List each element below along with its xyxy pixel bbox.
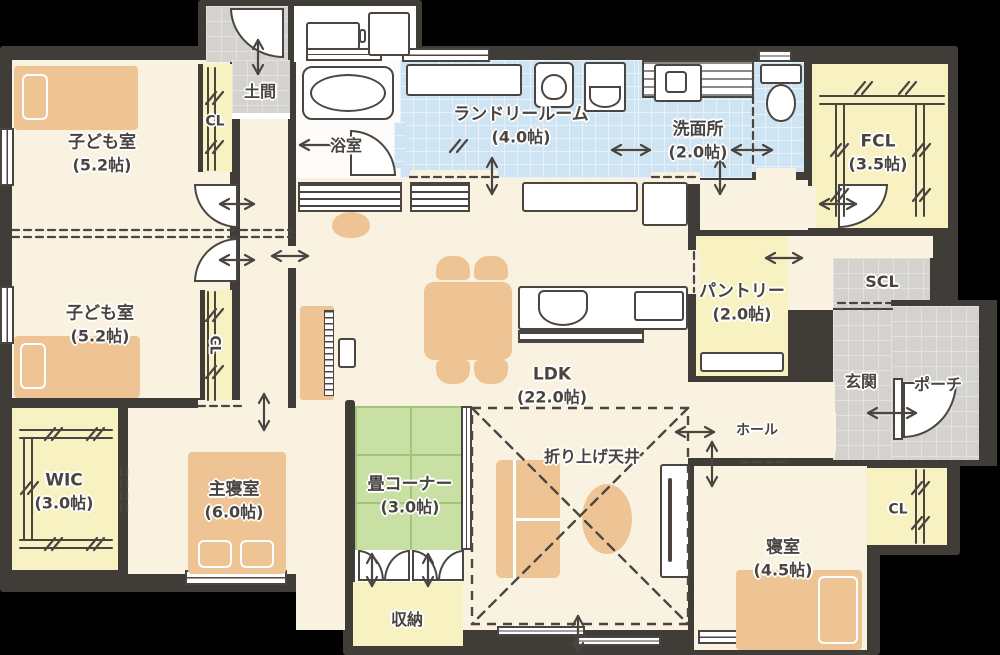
window-kids2-left xyxy=(0,286,14,344)
ldk-size: (22.0帖) xyxy=(517,387,587,409)
label-tatami: 畳コーナー (3.0帖) xyxy=(368,474,453,519)
fridge xyxy=(642,182,688,226)
kids1-name: 子ども室 xyxy=(68,133,136,153)
label-pantry: パントリー (2.0帖) xyxy=(699,281,785,326)
dining-chair-4 xyxy=(474,360,508,384)
storage-name: 収納 xyxy=(391,610,423,629)
cl1-name: CL xyxy=(205,114,224,130)
kitchen-stove xyxy=(634,291,684,321)
dining-chair-2 xyxy=(474,256,508,280)
hall-upper xyxy=(700,180,808,230)
laundry-counter xyxy=(406,64,522,96)
counter-desk-1 xyxy=(298,182,402,212)
hall-strip-scl xyxy=(788,236,933,258)
ceiling-name: 折り上げ天井 xyxy=(544,447,640,466)
window-toilet-top xyxy=(758,50,792,62)
toilet-bowl xyxy=(766,84,796,122)
pantry-size: (2.0帖) xyxy=(699,304,785,326)
piano-keys xyxy=(324,310,334,396)
label-porch: ポーチ xyxy=(914,374,962,396)
opening-hall-genkan xyxy=(826,412,836,452)
dining-chair-3 xyxy=(436,360,470,384)
label-cl2: CL xyxy=(205,335,224,354)
desk-stool xyxy=(332,212,370,238)
opening-corridor-ldk xyxy=(284,246,300,268)
wic-name: WIC xyxy=(45,471,83,491)
tv xyxy=(668,478,672,562)
tv-board xyxy=(660,464,690,578)
coffee-table xyxy=(582,484,632,554)
label-doma: 土間 xyxy=(244,81,276,103)
senmen-size: (2.0帖) xyxy=(669,142,728,164)
corridor xyxy=(240,119,288,410)
outdoor-unit xyxy=(368,12,410,56)
window-laundry-top xyxy=(402,48,490,62)
cl2-name: CL xyxy=(206,335,222,354)
opening-hall-ldk xyxy=(684,414,700,454)
pillow-kids2 xyxy=(20,343,46,389)
water-heater-tab xyxy=(359,29,366,43)
blanket-bedroom xyxy=(818,576,858,644)
kids2-name: 子ども室 xyxy=(66,304,134,324)
sofa xyxy=(496,460,560,578)
kitchen-sink xyxy=(538,290,588,326)
label-hall: ホール xyxy=(736,422,778,441)
dining-table xyxy=(424,282,512,360)
pantry-shelf xyxy=(700,352,784,372)
bedroom-name: 寝室 xyxy=(766,538,800,558)
label-fcl: FCL (3.5帖) xyxy=(849,131,908,176)
label-bedroom: 寝室 (4.5帖) xyxy=(754,537,813,582)
pillow-kids1 xyxy=(22,74,48,120)
label-ldk: LDK (22.0帖) xyxy=(517,364,587,409)
label-laundry: ランドリールーム (4.0帖) xyxy=(453,104,589,149)
opening-toilet-hall xyxy=(756,168,796,182)
window-kids1-left xyxy=(0,128,14,186)
label-genkan: 玄関 xyxy=(845,371,877,393)
label-scl: SCL xyxy=(865,271,898,293)
master-name: 主寝室 xyxy=(208,480,259,500)
genkan-name: 玄関 xyxy=(845,372,877,391)
floor-plan: 子ども室 (5.2帖) CL 子ども室 (5.2帖) CL 土間 浴室 ランドリ… xyxy=(0,0,1000,655)
toilet-tank xyxy=(760,64,802,84)
hall-strip-side xyxy=(788,258,833,310)
bathtub-inner xyxy=(310,74,386,112)
ldk-name: LDK xyxy=(533,365,571,385)
label-kids2: 子ども室 (5.2帖) xyxy=(66,303,134,348)
piano-bench xyxy=(338,338,356,368)
window-ldk-slider-1 xyxy=(497,626,585,636)
label-wic: WIC (3.0帖) xyxy=(35,470,94,515)
label-master: 主寝室 (6.0帖) xyxy=(205,479,264,524)
opening-pantry xyxy=(686,250,700,294)
label-storage: 収納 xyxy=(391,609,423,631)
kids1-size: (5.2帖) xyxy=(68,155,136,177)
water-heater-unit xyxy=(306,22,360,50)
kitchen-front-panel xyxy=(518,330,644,343)
hall-name: ホール xyxy=(736,423,778,439)
pillow-master-1 xyxy=(198,540,232,568)
opening-fcl-door xyxy=(804,186,816,228)
master-size: (6.0帖) xyxy=(205,502,264,524)
opening-master-door xyxy=(198,400,244,410)
opening-bath-laundry xyxy=(394,122,406,168)
porch-name: ポーチ xyxy=(914,375,962,394)
tatami-size: (3.0帖) xyxy=(368,497,453,519)
dining-chair-1 xyxy=(436,256,470,280)
opening-laundry-ldk xyxy=(410,170,498,182)
hall-main xyxy=(688,382,835,458)
cl3-name: CL xyxy=(888,502,907,518)
kitchen-back-counter xyxy=(522,182,638,212)
label-senmen: 洗面所 (2.0帖) xyxy=(669,119,728,164)
scl-name: SCL xyxy=(865,272,898,291)
counter-desk-2 xyxy=(410,182,470,212)
laundry-basket xyxy=(589,86,621,108)
laundry-name: ランドリールーム xyxy=(453,105,589,125)
label-bath: 浴室 xyxy=(330,135,362,157)
bath-name: 浴室 xyxy=(330,136,362,155)
laundry-sink-bowl xyxy=(541,74,567,100)
senmen-name: 洗面所 xyxy=(672,120,723,140)
bedroom-size: (4.5帖) xyxy=(754,560,813,582)
pillow-master-2 xyxy=(240,540,274,568)
window-ldk-slider-2 xyxy=(575,636,661,646)
vanity-bowl xyxy=(665,71,687,93)
fcl-name: FCL xyxy=(861,132,896,152)
label-cl1: CL xyxy=(205,113,224,132)
label-ceiling: 折り上げ天井 xyxy=(544,446,640,468)
laundry-size: (4.0帖) xyxy=(453,127,589,149)
pantry-name: パントリー xyxy=(699,282,785,302)
label-cl3: CL xyxy=(888,501,907,520)
fcl-size: (3.5帖) xyxy=(849,154,908,176)
label-kids1: 子ども室 (5.2帖) xyxy=(68,132,136,177)
doma-name: 土間 xyxy=(244,82,276,101)
tatami-sliding-door xyxy=(461,406,472,550)
tatami-name: 畳コーナー xyxy=(368,475,453,495)
wic-size: (3.0帖) xyxy=(35,493,94,515)
kids2-size: (5.2帖) xyxy=(66,326,134,348)
entrance-door-leaf xyxy=(893,378,903,440)
